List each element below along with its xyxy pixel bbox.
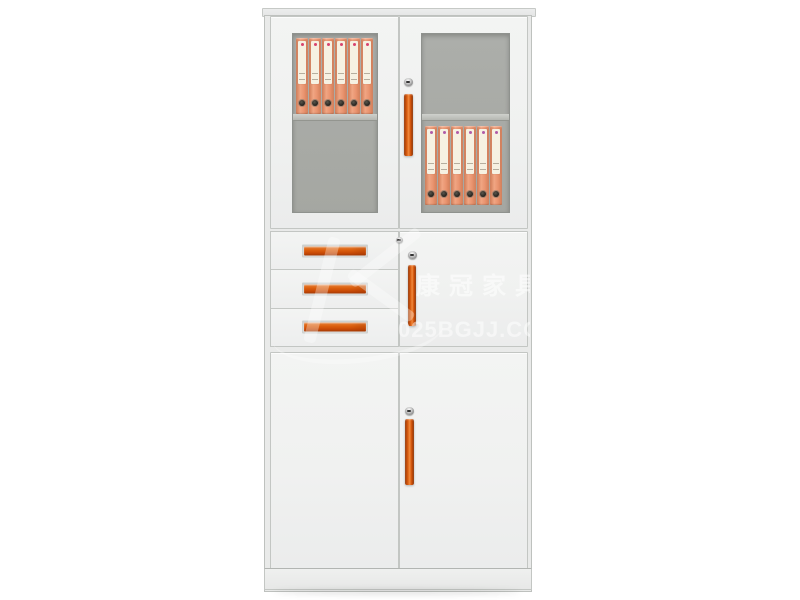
keyhole-lock-icon — [396, 237, 403, 243]
drawer — [271, 308, 398, 346]
door-handle-middle — [408, 265, 416, 326]
file-binder — [477, 126, 489, 205]
file-binder — [335, 38, 347, 114]
file-binder — [451, 126, 463, 205]
binder-finger-hole — [312, 100, 318, 106]
binder-row-left — [296, 38, 373, 114]
file-binder — [309, 38, 321, 114]
drawer — [271, 269, 398, 307]
bottom-door-right — [399, 352, 528, 569]
drawer-handle — [302, 321, 368, 334]
file-binder — [438, 126, 450, 205]
binder-spine-label — [453, 129, 461, 174]
binder-finger-hole — [454, 191, 460, 197]
binder-spine-label — [466, 129, 474, 174]
drawer-handle-bar — [304, 284, 366, 293]
binder-finger-hole — [441, 191, 447, 197]
drawer-handle-bar — [304, 323, 366, 332]
file-binder — [348, 38, 360, 114]
shelf-board — [422, 114, 509, 121]
drawer-handle-bar — [304, 246, 366, 255]
binder-spine-label — [337, 41, 345, 84]
bottom-door-left — [270, 352, 399, 569]
binder-finger-hole — [338, 100, 344, 106]
binder-spine-label — [492, 129, 500, 174]
file-binder — [296, 38, 308, 114]
middle-door-right — [399, 231, 528, 347]
drawer-stack — [270, 231, 399, 347]
ground-shadow — [274, 589, 520, 595]
binder-finger-hole — [325, 100, 331, 106]
file-binder — [490, 126, 502, 205]
door-handle-bottom — [405, 419, 414, 485]
file-binder — [425, 126, 437, 205]
binder-row-right — [425, 126, 502, 205]
binder-finger-hole — [364, 100, 370, 106]
keyhole-lock-icon — [404, 78, 413, 86]
drawer-handle — [302, 282, 368, 295]
binder-spine-label — [363, 41, 371, 84]
file-binder — [322, 38, 334, 114]
file-binder — [361, 38, 373, 114]
binder-spine-label — [479, 129, 487, 174]
door-handle-top — [404, 94, 413, 156]
binder-finger-hole — [480, 191, 486, 197]
binder-spine-label — [324, 41, 332, 84]
keyhole-lock-icon — [408, 251, 417, 259]
binder-spine-label — [311, 41, 319, 84]
binder-finger-hole — [299, 100, 305, 106]
binder-spine-label — [350, 41, 358, 84]
binder-finger-hole — [493, 191, 499, 197]
keyhole-lock-icon — [405, 407, 414, 415]
binder-spine-label — [440, 129, 448, 174]
shelf-board — [293, 114, 377, 121]
product-image-canvas: 康冠家具 025BGJJ.COM — [0, 0, 800, 600]
binder-spine-label — [427, 129, 435, 174]
binder-spine-label — [298, 41, 306, 84]
drawer — [271, 232, 398, 269]
cabinet-plinth — [264, 568, 532, 590]
drawer-handle — [302, 244, 368, 257]
binder-finger-hole — [428, 191, 434, 197]
glass-pane-left — [292, 33, 378, 213]
binder-finger-hole — [467, 191, 473, 197]
glass-pane-right — [421, 33, 510, 213]
binder-finger-hole — [351, 100, 357, 106]
file-binder — [464, 126, 476, 205]
